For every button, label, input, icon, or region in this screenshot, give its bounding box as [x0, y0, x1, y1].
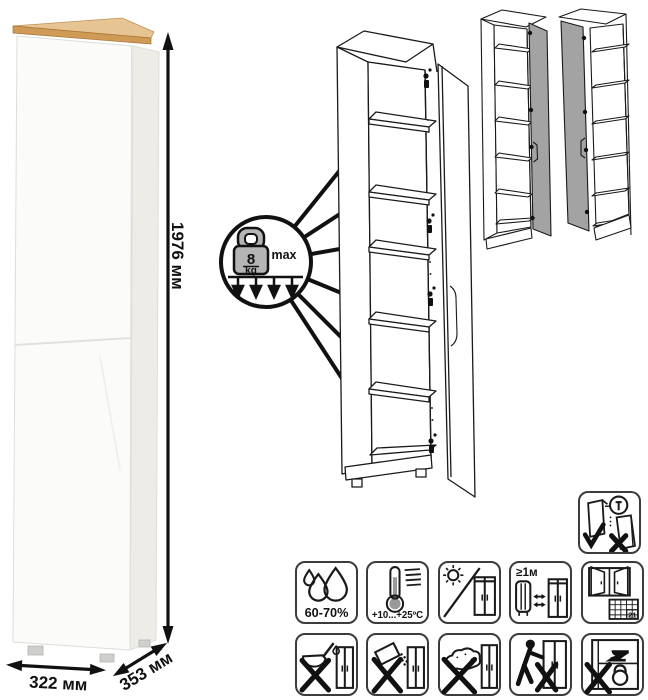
no-liquids-icon: [297, 635, 356, 694]
variant-door-left: [559, 9, 631, 240]
load-qualifier: max: [271, 248, 296, 262]
no-direct-sun-icon: [440, 563, 499, 622]
depth-dimension: 353 мм: [113, 643, 176, 695]
wardrobe-glyph: [475, 577, 495, 615]
window-ventilation-calendar-icon: 21: [583, 563, 642, 622]
width-label: 322 мм: [29, 672, 88, 694]
load-unit: kg: [245, 266, 257, 277]
no-abrasive-powder-icon: [368, 635, 427, 694]
x-mark: [374, 659, 400, 691]
height-dimension: 1976 мм: [163, 32, 188, 644]
spacing-arrows: [533, 594, 545, 607]
height-label: 1976 мм: [168, 222, 187, 290]
variant-door-right: [481, 10, 551, 249]
shelf-load-callout: 8 kg max: [221, 217, 311, 307]
product-photo: [13, 18, 159, 662]
thermometer-icon: +10...+25ºC: [368, 563, 427, 622]
x-mark: [537, 665, 555, 690]
product-sheet: 1976 мм 322 мм 353 мм: [0, 0, 648, 700]
pictogram-ventilation-acclimatize: 21: [581, 561, 644, 624]
no-heavy-load-icon: [583, 635, 642, 694]
pictogram-anchor-to-wall: [578, 491, 641, 554]
wardrobe-glyph: [549, 579, 567, 617]
pictogram-no-scouring: [438, 633, 501, 696]
width-dimension: 322 мм: [6, 660, 106, 694]
pictogram-humidity: 60-70%: [295, 561, 358, 624]
pictogram-no-direct-sun: [438, 561, 501, 624]
wardrobe-glyph: [482, 645, 497, 688]
temperature-label: +10...+25ºC: [372, 610, 423, 621]
humidity-drops-icon: 60-70%: [297, 563, 356, 622]
anchor-to-wall-icon: [580, 493, 639, 552]
heat-distance-icon: ≥1м: [511, 563, 570, 622]
gray-door-left: [561, 21, 589, 231]
gray-door-right: [529, 23, 551, 236]
open-door: [438, 64, 475, 497]
person-glyph: [518, 640, 542, 684]
no-dragging-icon: [511, 635, 570, 694]
no-scouring-icon: [440, 635, 499, 694]
x-mark: [444, 659, 475, 692]
pictogram-no-heavy-load: [581, 633, 644, 696]
pictogram-no-liquids: [295, 633, 358, 696]
pictogram-heat-distance: ≥1м: [509, 561, 572, 624]
kettlebell-glyph: [613, 666, 627, 685]
anvil-glyph: [605, 650, 628, 661]
calendar-glyph: 21: [609, 600, 637, 620]
heat-distance-label: ≥1м: [516, 566, 538, 579]
exploded-cabinet-drawing: [337, 31, 475, 497]
wardrobe-glyph: [408, 647, 424, 688]
humidity-label: 60-70%: [305, 605, 349, 620]
pictogram-no-dragging: [509, 633, 572, 696]
pictogram-no-abrasive-powder: [366, 633, 429, 696]
acclimatize-days-label: 21: [628, 610, 637, 619]
pictogram-temperature: +10...+25ºC: [366, 561, 429, 624]
x-mark: [302, 660, 328, 690]
